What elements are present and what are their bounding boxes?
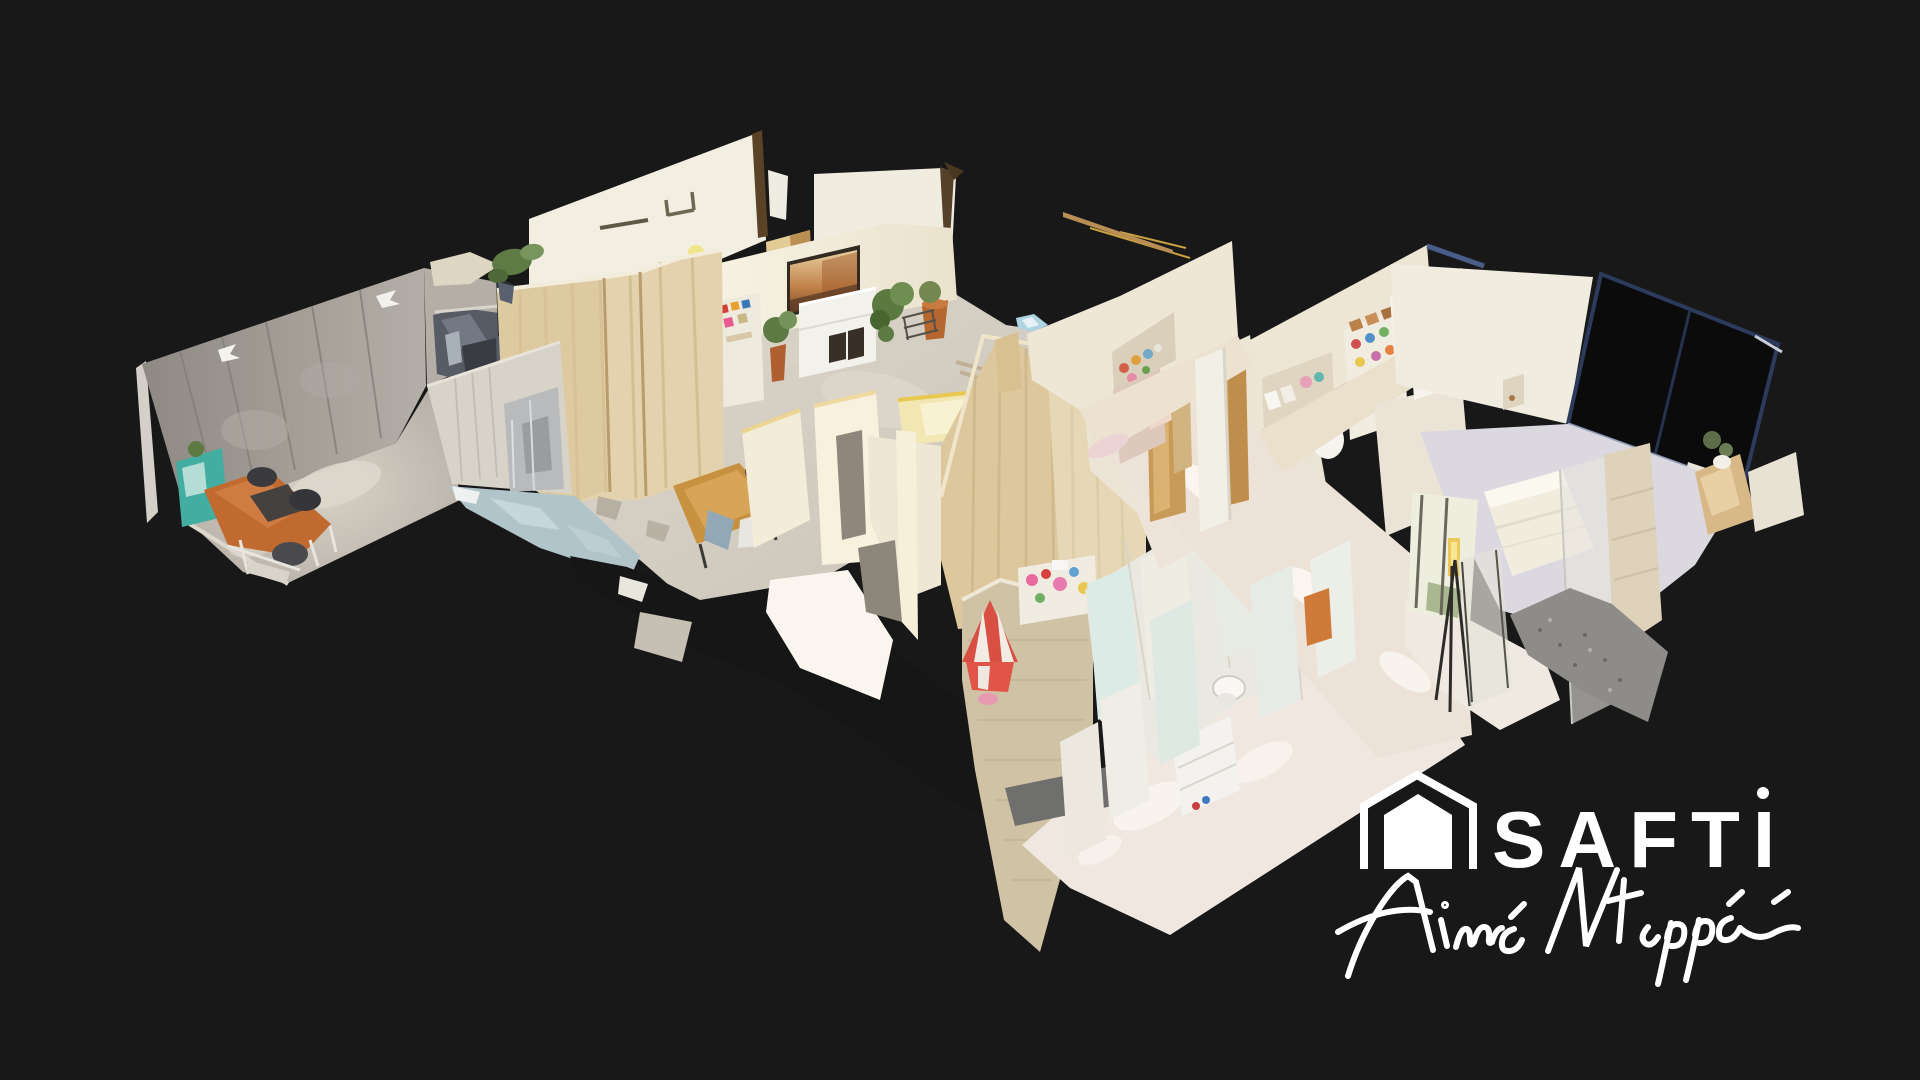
svg-text:SAFTI: SAFTI xyxy=(1492,795,1788,884)
